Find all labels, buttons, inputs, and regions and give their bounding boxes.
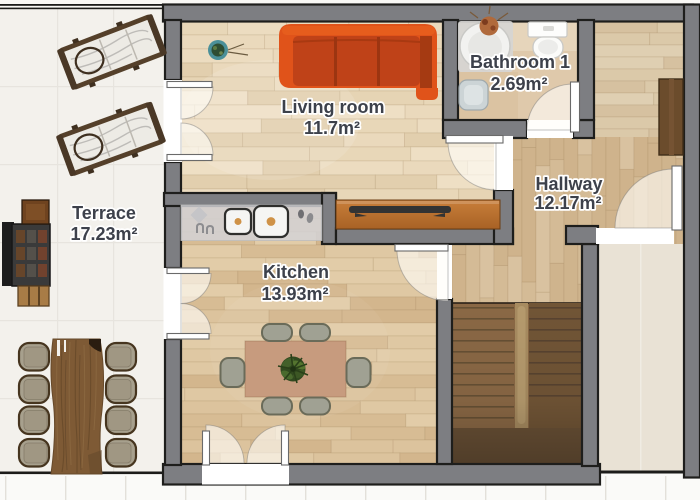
svg-text:Terrace17.23m²: Terrace17.23m² — [70, 203, 137, 244]
svg-text:Hallway12.17m²: Hallway12.17m² — [534, 174, 602, 213]
